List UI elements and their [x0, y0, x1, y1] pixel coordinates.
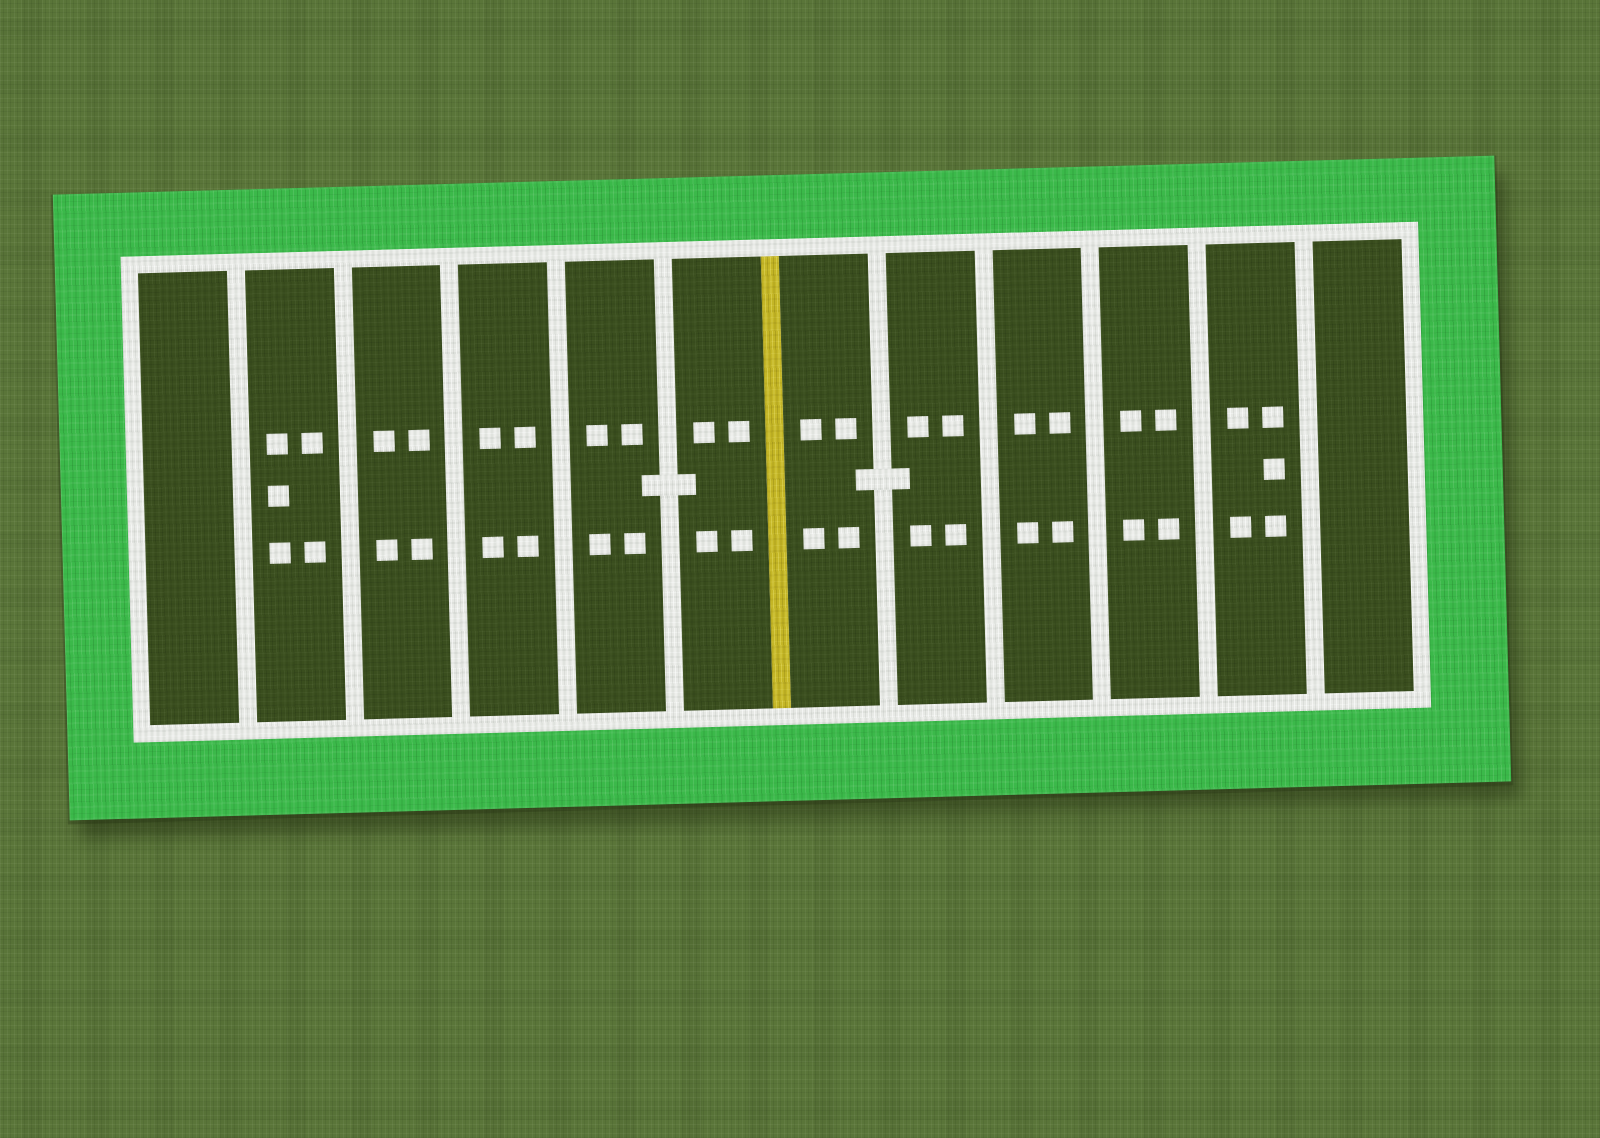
hash-mark [1227, 407, 1249, 429]
yard-line-cross-mark [642, 474, 697, 496]
hash-mark [838, 526, 860, 548]
hash-mark [269, 542, 291, 564]
yard-line-cross-mark [855, 468, 910, 490]
hash-mark [1017, 522, 1039, 544]
hash-mark [942, 415, 964, 437]
field-segment [1206, 242, 1307, 696]
hash-mark [266, 433, 288, 455]
hash-mark [621, 424, 643, 446]
hash-mark [728, 421, 750, 443]
hash-mark [589, 533, 611, 555]
hash-mark [1049, 412, 1071, 434]
hash-mark [304, 541, 326, 563]
hash-mark [800, 419, 822, 441]
field-segment [458, 262, 559, 716]
hash-mark [515, 427, 537, 449]
hash-mark [301, 432, 323, 454]
field-apron [53, 156, 1511, 821]
mid-side-mark [267, 485, 289, 507]
hash-mark [945, 524, 967, 546]
hash-mark [624, 532, 646, 554]
hash-mark [483, 536, 505, 558]
hash-mark [518, 535, 540, 557]
football-field [138, 239, 1414, 725]
hash-mark [1123, 519, 1145, 541]
hash-mark [411, 538, 433, 560]
hash-mark [907, 416, 929, 438]
field-segment [1099, 245, 1200, 699]
field-segment [352, 265, 453, 719]
hash-mark [376, 539, 398, 561]
hash-mark [803, 527, 825, 549]
mid-side-mark [1264, 458, 1286, 480]
hash-mark [693, 422, 715, 444]
hash-mark [1155, 409, 1177, 431]
field-segment [245, 268, 346, 722]
end-zone-left [138, 271, 239, 725]
hash-mark [731, 529, 753, 551]
hash-mark [1158, 518, 1180, 540]
hash-mark [1230, 516, 1252, 538]
hash-mark [696, 530, 718, 552]
end-zone-right [1313, 239, 1414, 693]
hash-mark [373, 431, 395, 453]
hash-mark [835, 418, 857, 440]
hash-mark [910, 525, 932, 547]
hash-mark [1120, 410, 1142, 432]
hash-mark [408, 430, 430, 452]
hash-mark [1262, 406, 1284, 428]
hash-mark [1265, 515, 1287, 537]
hash-mark [586, 425, 608, 447]
grass-plain [0, 0, 1600, 1138]
field-boundary [121, 222, 1432, 743]
hash-mark [1014, 413, 1036, 435]
hash-mark [480, 428, 502, 450]
field-segment [992, 248, 1093, 702]
hash-mark [1052, 521, 1074, 543]
